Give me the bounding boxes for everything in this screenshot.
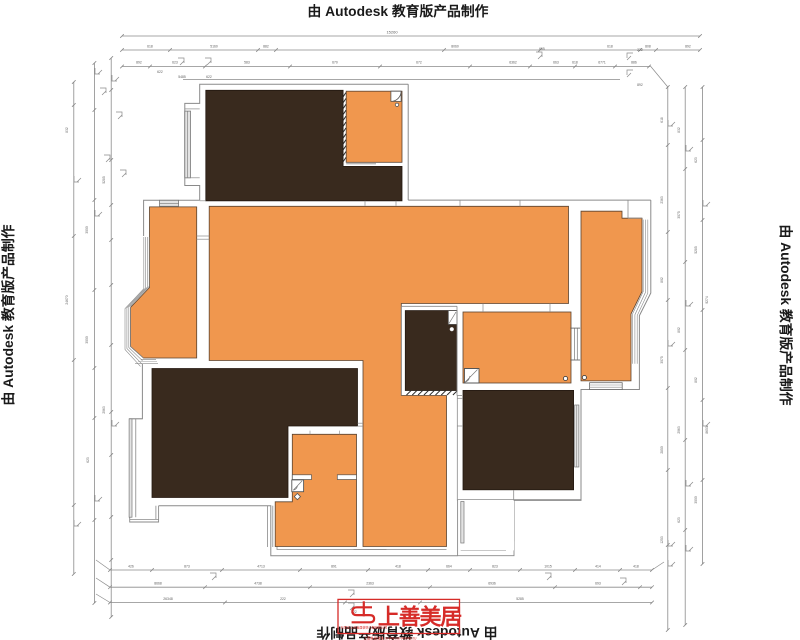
svg-text:618: 618 xyxy=(660,117,664,123)
svg-text:由 Autodesk 教育版产品制作: 由 Autodesk 教育版产品制作 xyxy=(0,224,16,405)
svg-text:5285: 5285 xyxy=(694,246,698,254)
svg-text:618: 618 xyxy=(607,45,613,49)
svg-text:8668: 8668 xyxy=(154,582,162,586)
svg-text:823: 823 xyxy=(492,565,498,569)
svg-text:5285: 5285 xyxy=(516,597,524,601)
svg-text:414: 414 xyxy=(595,565,601,569)
svg-text:891: 891 xyxy=(331,565,337,569)
svg-text:8653: 8653 xyxy=(705,426,709,434)
svg-text:1015: 1015 xyxy=(544,565,552,569)
svg-text:6936: 6936 xyxy=(488,582,496,586)
svg-text:892: 892 xyxy=(660,277,664,283)
svg-text:623: 623 xyxy=(694,157,698,163)
svg-text:623: 623 xyxy=(172,61,178,65)
svg-text:623: 623 xyxy=(86,457,90,463)
svg-text:622: 622 xyxy=(206,75,212,79)
svg-text:892: 892 xyxy=(685,45,691,49)
svg-text:695: 695 xyxy=(539,47,545,51)
svg-text:8060: 8060 xyxy=(451,45,459,49)
svg-text:892: 892 xyxy=(677,327,681,333)
svg-text:663: 663 xyxy=(553,61,559,65)
svg-text:618: 618 xyxy=(572,61,578,65)
svg-text:6362: 6362 xyxy=(509,61,517,65)
svg-text:3075: 3075 xyxy=(660,356,664,364)
svg-text:418: 418 xyxy=(633,565,639,569)
svg-text:222: 222 xyxy=(637,48,643,52)
svg-text:5285: 5285 xyxy=(102,176,106,184)
svg-text:892: 892 xyxy=(136,61,142,65)
svg-text:2363: 2363 xyxy=(366,582,374,586)
svg-text:5485: 5485 xyxy=(178,75,186,79)
svg-text:3000: 3000 xyxy=(85,226,89,234)
svg-text:873: 873 xyxy=(184,565,190,569)
svg-text:上善美居: 上善美居 xyxy=(378,605,462,630)
svg-text:由 Autodesk 教育版产品制作: 由 Autodesk 教育版产品制作 xyxy=(778,225,794,406)
svg-text:6771: 6771 xyxy=(598,61,606,65)
svg-text:892: 892 xyxy=(694,377,698,383)
svg-text:4738: 4738 xyxy=(254,582,262,586)
svg-text:2963: 2963 xyxy=(677,426,681,434)
svg-text:832: 832 xyxy=(677,127,681,133)
svg-text:3000: 3000 xyxy=(85,336,89,344)
svg-text:2363: 2363 xyxy=(660,196,664,204)
svg-text:9274: 9274 xyxy=(705,296,709,304)
svg-text:2850: 2850 xyxy=(660,446,664,454)
svg-text:892: 892 xyxy=(637,83,643,87)
svg-text:26348: 26348 xyxy=(163,597,173,601)
svg-text:672: 672 xyxy=(416,61,422,65)
svg-text:3000: 3000 xyxy=(694,496,698,504)
svg-text:1253: 1253 xyxy=(660,536,664,544)
svg-text:上善美居装饰 SHANGSHANMEIJU: 上善美居装饰 SHANGSHANMEIJU xyxy=(364,636,417,640)
svg-text:622: 622 xyxy=(157,70,163,74)
svg-text:15260: 15260 xyxy=(386,30,398,35)
svg-text:670: 670 xyxy=(332,61,338,65)
svg-text:618: 618 xyxy=(147,45,153,49)
svg-text:664: 664 xyxy=(446,565,452,569)
svg-text:808: 808 xyxy=(645,45,651,49)
svg-text:882: 882 xyxy=(263,45,269,49)
svg-text:583: 583 xyxy=(244,61,250,65)
svg-text:222: 222 xyxy=(280,597,286,601)
svg-text:由 Autodesk 教育版产品制作: 由 Autodesk 教育版产品制作 xyxy=(308,3,489,19)
svg-text:886: 886 xyxy=(631,61,637,65)
svg-text:3075: 3075 xyxy=(677,211,681,219)
svg-text:24670: 24670 xyxy=(65,295,69,304)
svg-text:693: 693 xyxy=(595,582,601,586)
svg-text:5160: 5160 xyxy=(210,45,218,49)
svg-text:2963: 2963 xyxy=(102,406,106,414)
svg-text:623: 623 xyxy=(677,517,681,523)
svg-text:4713: 4713 xyxy=(257,565,265,569)
svg-text:832: 832 xyxy=(65,127,69,133)
svg-text:426: 426 xyxy=(128,565,134,569)
svg-text:418: 418 xyxy=(395,565,401,569)
